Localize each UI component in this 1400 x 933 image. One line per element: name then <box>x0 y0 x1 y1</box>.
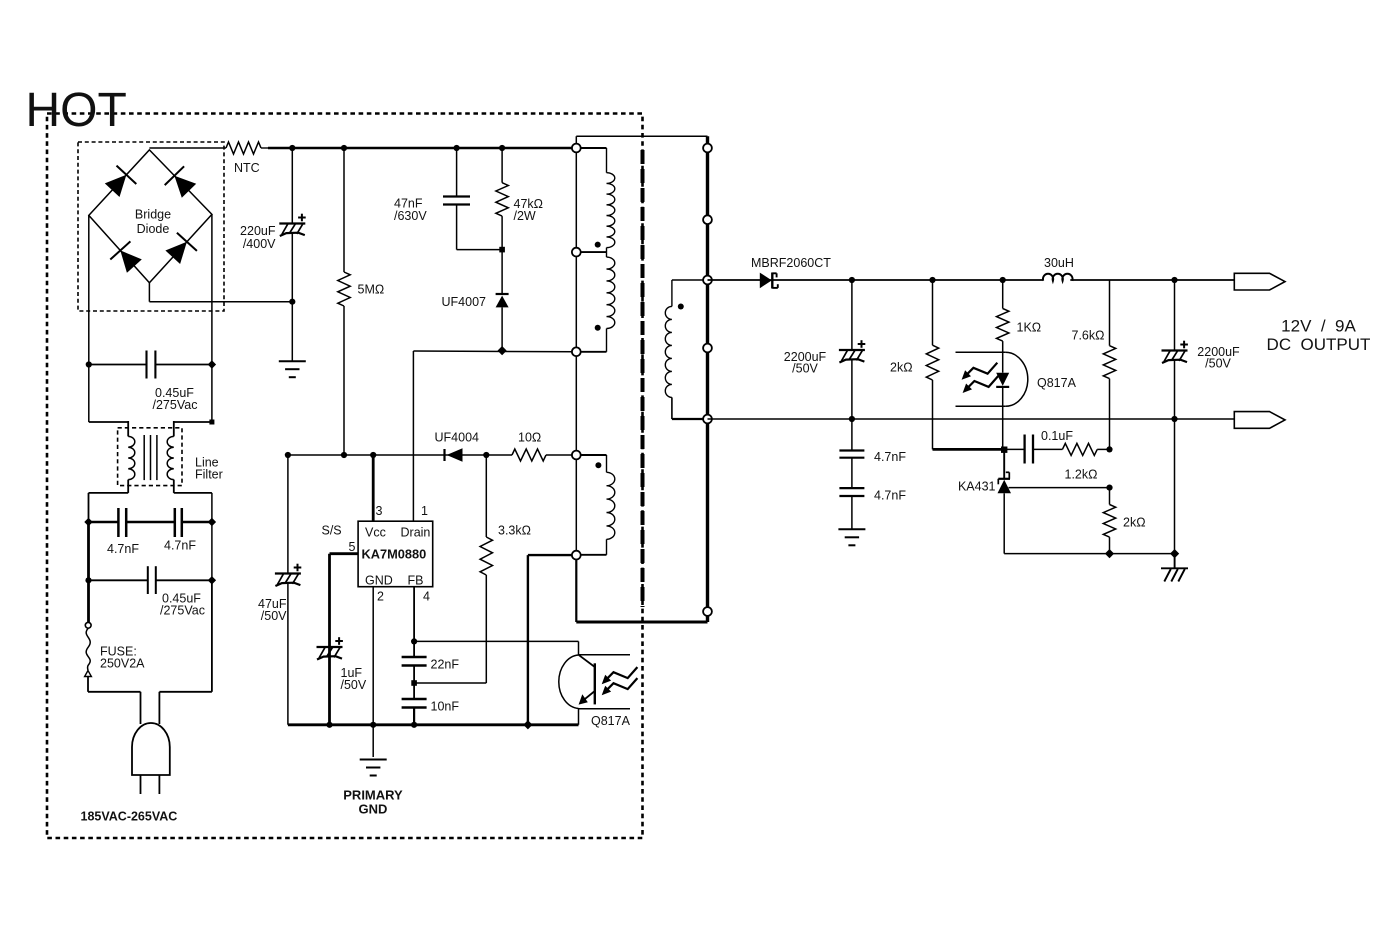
svg-text:/50V: /50V <box>341 678 367 692</box>
svg-text:/630V: /630V <box>394 209 427 223</box>
svg-text:/275Vac: /275Vac <box>160 604 205 618</box>
svg-text:4: 4 <box>423 590 430 604</box>
svg-text:4.7nF: 4.7nF <box>107 542 139 556</box>
svg-text:10nF: 10nF <box>431 700 460 714</box>
svg-text:Diode: Diode <box>137 222 170 236</box>
svg-text:3: 3 <box>376 504 383 518</box>
svg-text:S/S: S/S <box>322 524 342 538</box>
svg-text:1.2kΩ: 1.2kΩ <box>1065 468 1098 482</box>
svg-text:7.6kΩ: 7.6kΩ <box>1072 329 1105 343</box>
svg-text:DC OUTPUT: DC OUTPUT <box>1267 335 1371 354</box>
svg-text:10Ω: 10Ω <box>518 431 541 445</box>
svg-text:/400V: /400V <box>243 237 276 251</box>
svg-text:/2W: /2W <box>514 209 536 223</box>
svg-text:GND: GND <box>365 574 393 588</box>
svg-text:/50V: /50V <box>1205 357 1231 371</box>
svg-text:4.7nF: 4.7nF <box>874 489 906 503</box>
svg-text:2kΩ: 2kΩ <box>890 361 913 375</box>
svg-text:KA7M0880: KA7M0880 <box>362 547 427 562</box>
svg-text:220uF: 220uF <box>240 224 276 238</box>
svg-text:UF4004: UF4004 <box>435 431 480 445</box>
svg-text:HOT: HOT <box>26 84 127 137</box>
svg-text:4.7nF: 4.7nF <box>874 450 906 464</box>
svg-text:22nF: 22nF <box>431 658 460 672</box>
svg-text:3.3kΩ: 3.3kΩ <box>498 524 531 538</box>
svg-text:Drain: Drain <box>401 526 431 540</box>
svg-text:Bridge: Bridge <box>135 208 171 222</box>
svg-text:1: 1 <box>421 504 428 518</box>
svg-text:4.7nF: 4.7nF <box>164 539 196 553</box>
svg-text:1KΩ: 1KΩ <box>1017 321 1042 335</box>
svg-text:2kΩ: 2kΩ <box>1123 516 1146 530</box>
svg-text:/50V: /50V <box>792 362 818 376</box>
svg-text:Vcc: Vcc <box>365 526 386 540</box>
svg-text:MBRF2060CT: MBRF2060CT <box>751 256 831 270</box>
svg-text:Q817A: Q817A <box>591 714 631 728</box>
svg-text:/275Vac: /275Vac <box>153 398 198 412</box>
svg-text:2: 2 <box>377 590 384 604</box>
svg-text:PRIMARY: PRIMARY <box>343 788 403 803</box>
svg-text:185VAC-265VAC: 185VAC-265VAC <box>81 810 178 824</box>
svg-text:5: 5 <box>349 540 356 554</box>
svg-text:Filter: Filter <box>195 468 223 482</box>
svg-text:KA431: KA431 <box>958 480 996 494</box>
svg-text:GND: GND <box>359 802 388 817</box>
svg-text:30uH: 30uH <box>1044 256 1074 270</box>
svg-text:250V2A: 250V2A <box>100 657 145 671</box>
svg-text:NTC: NTC <box>234 161 260 175</box>
svg-text:/50V: /50V <box>261 609 287 623</box>
svg-text:0.1uF: 0.1uF <box>1041 429 1073 443</box>
svg-text:FB: FB <box>408 574 424 588</box>
svg-text:Q817A: Q817A <box>1037 376 1077 390</box>
svg-text:UF4007: UF4007 <box>442 295 487 309</box>
svg-text:12V / 9A: 12V / 9A <box>1281 317 1356 336</box>
svg-text:5MΩ: 5MΩ <box>358 283 385 297</box>
